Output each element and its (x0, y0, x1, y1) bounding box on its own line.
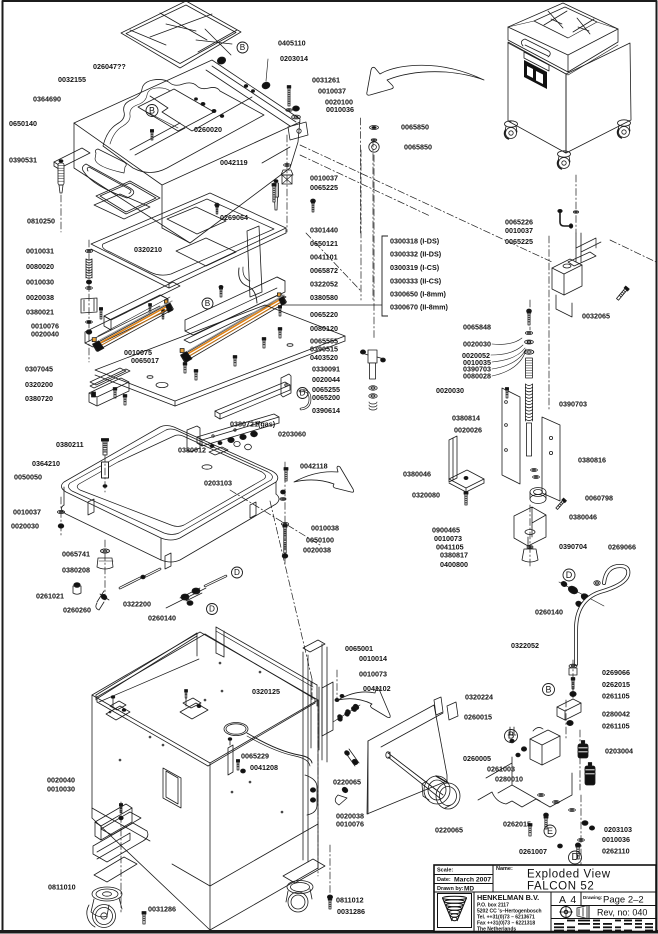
svg-text:0220065: 0220065 (333, 778, 361, 787)
svg-text:0300332 (II-DS): 0300332 (II-DS) (390, 250, 442, 259)
svg-text:0065225: 0065225 (310, 183, 338, 192)
svg-text:0380208: 0380208 (62, 566, 90, 575)
svg-text:0301440: 0301440 (310, 226, 338, 235)
svg-text:0080028: 0080028 (463, 372, 491, 381)
svg-text:0261007: 0261007 (519, 847, 547, 856)
svg-text:0203014: 0203014 (280, 54, 308, 63)
svg-text:0020040: 0020040 (47, 776, 75, 785)
svg-text:0010037: 0010037 (505, 226, 533, 235)
svg-text:0010030: 0010030 (47, 785, 75, 794)
svg-text:0300319 (I-CS): 0300319 (I-CS) (390, 263, 440, 272)
svg-text:0380580: 0380580 (310, 293, 338, 302)
svg-text:Drawn by:: Drawn by: (437, 886, 464, 892)
svg-text:0262110: 0262110 (602, 847, 630, 856)
svg-text:0020030: 0020030 (11, 522, 39, 531)
svg-text:0261021: 0261021 (36, 592, 64, 601)
svg-text:0810250: 0810250 (27, 217, 55, 226)
svg-text:0041101: 0041101 (310, 253, 338, 262)
svg-text:0050050: 0050050 (14, 473, 42, 482)
svg-text:0262015: 0262015 (503, 820, 531, 829)
svg-text:0261003: 0261003 (487, 765, 515, 774)
svg-text:Exploded View: Exploded View (527, 869, 611, 881)
svg-text:0065850: 0065850 (401, 123, 429, 132)
svg-text:0065741: 0065741 (62, 550, 90, 559)
svg-text:0065017: 0065017 (131, 356, 159, 365)
svg-text:0405110: 0405110 (278, 39, 306, 48)
svg-text:0031261: 0031261 (312, 76, 340, 85)
svg-text:0380721(gas): 0380721(gas) (230, 420, 276, 429)
svg-text:0203103: 0203103 (204, 479, 232, 488)
svg-text:0261105: 0261105 (602, 692, 630, 701)
svg-text:B: B (545, 685, 551, 695)
svg-text:0041102: 0041102 (363, 684, 391, 693)
svg-text:0380211: 0380211 (56, 440, 84, 449)
svg-text:0042119: 0042119 (220, 158, 248, 167)
svg-text:0020030: 0020030 (436, 386, 464, 395)
svg-text:0060798: 0060798 (585, 494, 613, 503)
svg-text:0650140: 0650140 (9, 119, 37, 128)
svg-text:The Netherlands: The Netherlands (477, 927, 516, 933)
svg-text:0811012: 0811012 (336, 896, 364, 905)
svg-text:0380720: 0380720 (25, 394, 53, 403)
svg-text:0010031: 0010031 (26, 247, 54, 256)
svg-text:D: D (571, 852, 578, 863)
svg-text:0010014: 0010014 (359, 654, 387, 663)
svg-text:0203004: 0203004 (605, 747, 633, 756)
svg-text:A 4: A 4 (559, 894, 577, 906)
svg-text:0080020: 0080020 (26, 262, 54, 271)
svg-text:B: B (240, 43, 246, 52)
svg-text:0400800: 0400800 (440, 560, 468, 569)
svg-text:0380046: 0380046 (569, 513, 597, 522)
svg-text:0260005: 0260005 (463, 754, 491, 763)
svg-text:D: D (300, 389, 306, 398)
svg-text:0320125: 0320125 (252, 687, 280, 696)
svg-text:0390531: 0390531 (9, 156, 37, 165)
svg-text:0330091: 0330091 (312, 365, 340, 374)
svg-text:0269066: 0269066 (602, 668, 630, 677)
svg-text:0220065: 0220065 (435, 826, 463, 835)
svg-text:0390614: 0390614 (312, 406, 340, 415)
svg-text:0010030: 0010030 (26, 278, 54, 287)
svg-text:0300333 (II-CS): 0300333 (II-CS) (390, 277, 442, 286)
svg-text:0380814: 0380814 (452, 414, 480, 423)
svg-text:0065220: 0065220 (310, 310, 338, 319)
svg-text:0010036: 0010036 (602, 835, 630, 844)
svg-text:0320200: 0320200 (25, 380, 53, 389)
svg-text:0020040: 0020040 (31, 330, 59, 339)
svg-text:0322052: 0322052 (511, 641, 539, 650)
svg-text:026047??: 026047?? (93, 62, 126, 71)
svg-text:B: B (205, 299, 211, 308)
svg-text:D: D (566, 570, 573, 580)
svg-text:0020026: 0020026 (454, 426, 482, 435)
svg-text:E: E (547, 826, 553, 836)
svg-text:D: D (209, 605, 215, 614)
svg-text:0380021: 0380021 (26, 308, 54, 317)
svg-text:0300670 (II-8mm): 0300670 (II-8mm) (390, 303, 449, 312)
svg-text:0010073: 0010073 (359, 670, 387, 679)
svg-text:0020038: 0020038 (303, 546, 331, 555)
svg-text:0010038: 0010038 (311, 524, 339, 533)
svg-text:0364690: 0364690 (33, 95, 61, 104)
svg-text:0380012: 0380012 (178, 446, 206, 455)
svg-text:0269066: 0269066 (608, 543, 636, 552)
svg-text:0380817: 0380817 (440, 551, 468, 560)
svg-text:0203060: 0203060 (278, 430, 306, 439)
svg-text:Page 2–2: Page 2–2 (603, 895, 644, 906)
svg-text:0032155: 0032155 (58, 75, 86, 84)
svg-text:0050100: 0050100 (306, 536, 334, 545)
svg-text:0041208: 0041208 (250, 763, 278, 772)
svg-text:0261105: 0261105 (602, 722, 630, 731)
svg-text:0065848: 0065848 (463, 323, 491, 332)
svg-text:MD: MD (464, 886, 474, 893)
svg-text:0300318 (I-DS): 0300318 (I-DS) (390, 237, 440, 246)
svg-text:0262015: 0262015 (602, 680, 630, 689)
svg-text:Drawing:: Drawing: (583, 895, 603, 900)
svg-text:B: B (508, 731, 515, 742)
svg-text:0380046: 0380046 (403, 470, 431, 479)
svg-text:March 2007: March 2007 (454, 877, 491, 884)
svg-text:0010037: 0010037 (310, 174, 338, 183)
svg-text:0080120: 0080120 (310, 324, 338, 333)
svg-text:0020038: 0020038 (26, 293, 54, 302)
svg-text:0031286: 0031286 (148, 905, 176, 914)
svg-text:0065225: 0065225 (505, 237, 533, 246)
svg-text:0020030: 0020030 (463, 340, 491, 349)
svg-text:B: B (149, 106, 155, 116)
svg-text:0390704: 0390704 (559, 542, 587, 551)
svg-text:0322200: 0322200 (123, 600, 151, 609)
svg-text:0260260: 0260260 (63, 606, 91, 615)
svg-text:0010076: 0010076 (336, 820, 364, 829)
svg-text:0010037: 0010037 (318, 87, 346, 96)
svg-text:0307045: 0307045 (25, 365, 53, 374)
svg-text:0065001: 0065001 (345, 644, 373, 653)
svg-text:0260140: 0260140 (535, 608, 563, 617)
svg-text:Scale:: Scale: (437, 868, 453, 874)
svg-text:0320080: 0320080 (412, 491, 440, 500)
svg-text:0065872: 0065872 (310, 266, 338, 275)
svg-text:HENKELMAN B.V.: HENKELMAN B.V. (477, 893, 539, 902)
svg-text:0390703: 0390703 (559, 400, 587, 409)
svg-text:0364210: 0364210 (32, 459, 60, 468)
svg-text:Name:: Name: (496, 866, 513, 872)
svg-text:0403520: 0403520 (310, 353, 338, 362)
svg-text:0260015: 0260015 (464, 713, 492, 722)
svg-text:0280042: 0280042 (602, 710, 630, 719)
svg-text:0203103: 0203103 (604, 825, 632, 834)
svg-text:0065229: 0065229 (241, 752, 269, 761)
svg-text:0269064: 0269064 (220, 213, 248, 222)
svg-text:0320224: 0320224 (465, 693, 493, 702)
svg-text:0280010: 0280010 (495, 775, 523, 784)
svg-text:0065850: 0065850 (404, 143, 432, 152)
svg-text:0380816: 0380816 (578, 456, 606, 465)
svg-text:Date:: Date: (437, 877, 451, 883)
svg-text:Rev, no: 040: Rev, no: 040 (597, 908, 647, 918)
svg-text:0260020: 0260020 (194, 125, 222, 134)
svg-text:0010036: 0010036 (326, 105, 354, 114)
svg-text:0042118: 0042118 (300, 462, 328, 471)
svg-text:D: D (234, 568, 240, 577)
svg-text:0320210: 0320210 (134, 245, 162, 254)
svg-text:0031286: 0031286 (337, 907, 365, 916)
svg-text:0020044: 0020044 (312, 375, 340, 384)
svg-text:0322052: 0322052 (310, 280, 338, 289)
svg-text:0260140: 0260140 (148, 614, 176, 623)
svg-text:0300650 (I-8mm): 0300650 (I-8mm) (390, 290, 447, 299)
svg-text:0065200: 0065200 (312, 393, 340, 402)
svg-text:0010037: 0010037 (13, 508, 41, 517)
svg-text:0650121: 0650121 (310, 239, 338, 248)
svg-text:0032065: 0032065 (582, 312, 610, 321)
svg-text:FALCON 52: FALCON 52 (527, 881, 594, 893)
svg-text:0811010: 0811010 (48, 883, 76, 892)
